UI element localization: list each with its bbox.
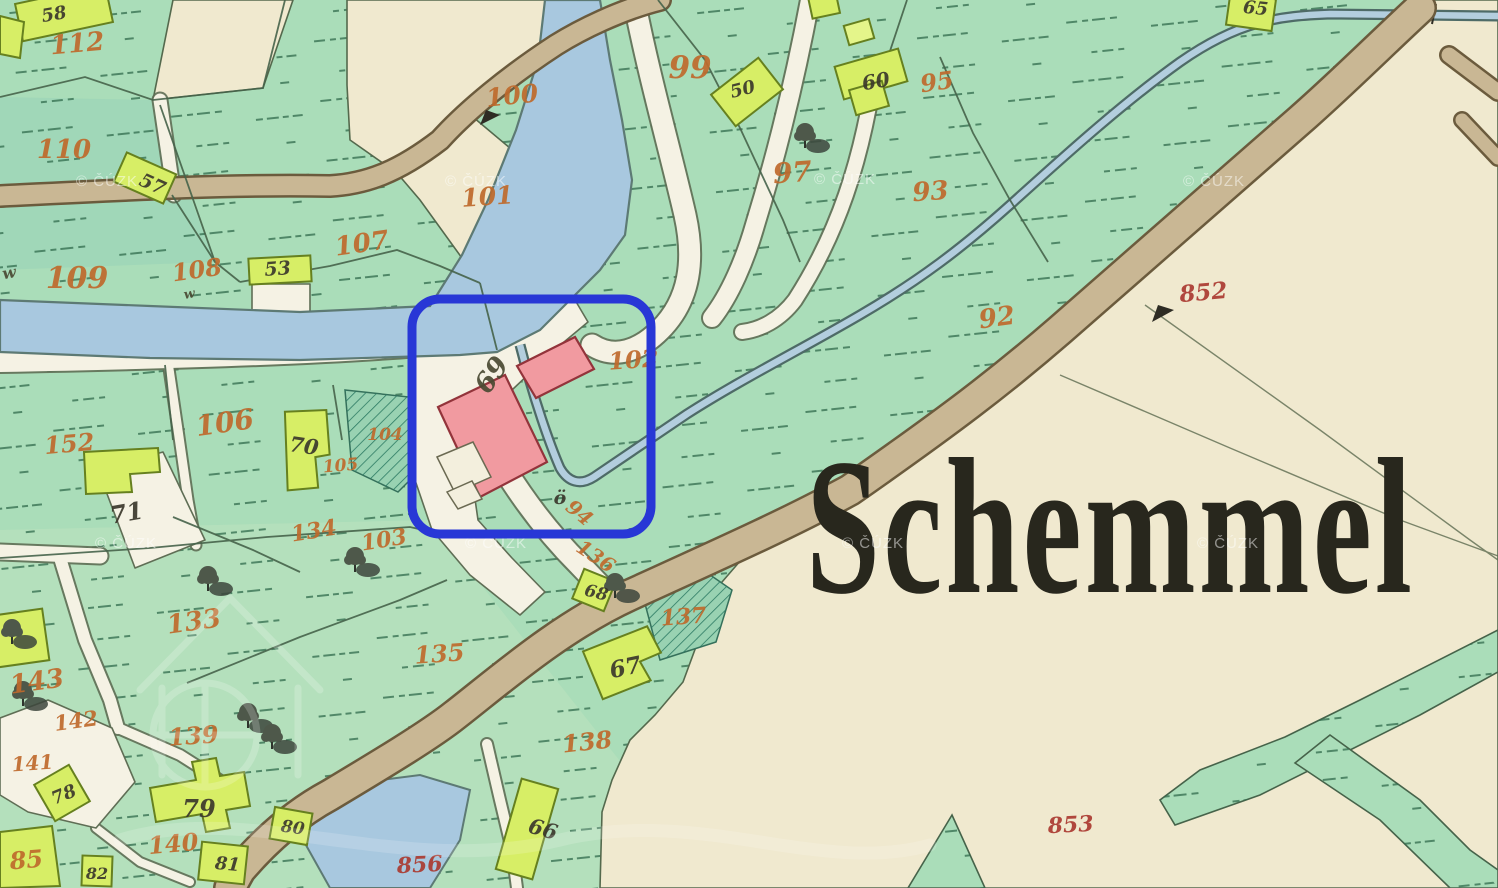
- parcel-label-95: 95: [918, 65, 955, 98]
- parcel-label-137: 137: [660, 602, 708, 631]
- parcel-label-70: 70: [288, 431, 321, 460]
- cuzk-watermark: © ČÚZK: [842, 535, 904, 552]
- parcel-label-104: 104: [367, 425, 403, 445]
- cuzk-watermark: © ČÚZK: [814, 171, 876, 188]
- parcel-label-71: 71: [108, 495, 146, 529]
- parcel-label-65: 65: [1242, 0, 1269, 20]
- map-viewport: 5811211057109108531071001019950609597936…: [0, 0, 1498, 888]
- parcel-label-112: 112: [49, 27, 106, 62]
- parcel-label-81: 81: [213, 853, 241, 876]
- parcel-label-97: 97: [772, 155, 814, 191]
- parcel-label-135: 135: [413, 637, 465, 669]
- parcel-label-79: 79: [182, 794, 216, 823]
- parcel-label-852: 852: [1177, 277, 1228, 308]
- cuzk-watermark: © ČÚZK: [76, 173, 138, 190]
- cuzk-watermark: © ČÚZK: [1183, 173, 1245, 190]
- parcel-label-99: 99: [668, 50, 711, 86]
- parcel-label-110: 110: [37, 135, 91, 165]
- parcel-label-58: 58: [40, 2, 69, 27]
- parcel-label-ö: ö: [554, 487, 567, 509]
- parcel-label-109: 109: [46, 261, 109, 296]
- parcel-label-93: 93: [911, 176, 949, 208]
- parcel-label-92: 92: [977, 301, 1017, 336]
- place-name-label: Schemmel: [806, 419, 1415, 635]
- parcel-label-152: 152: [43, 427, 95, 460]
- parcel-label-60: 60: [860, 67, 892, 95]
- cuzk-watermark: © ČÚZK: [1197, 535, 1259, 552]
- parcel-label-53: 53: [264, 257, 292, 281]
- parcel-label-105: 105: [322, 455, 359, 478]
- parcel-label-82: 82: [85, 864, 108, 883]
- parcel-label-853: 853: [1046, 811, 1094, 839]
- cuzk-watermark: © ČÚZK: [445, 173, 507, 190]
- cuzk-watermark: © ČÚZK: [95, 535, 157, 552]
- parcel-label-85: 85: [7, 844, 44, 876]
- map-canvas[interactable]: 5811211057109108531071001019950609597936…: [0, 0, 1498, 888]
- parcel-label-138: 138: [561, 724, 614, 758]
- parcel-label-100: 100: [485, 78, 541, 112]
- parcel-label-141: 141: [11, 750, 54, 777]
